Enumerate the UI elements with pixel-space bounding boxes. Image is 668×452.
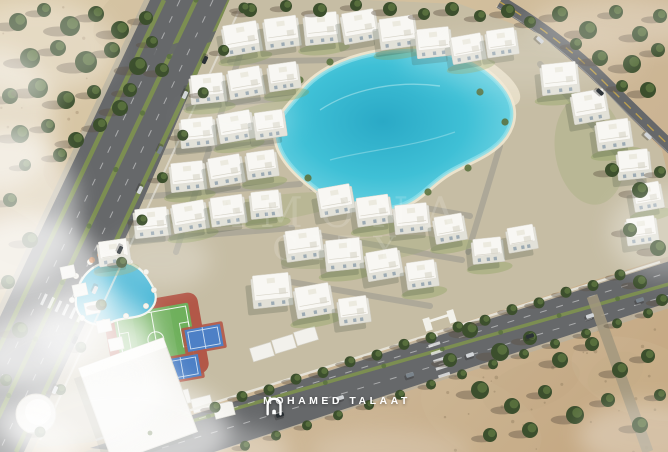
rock-speckle (586, 352, 588, 354)
median-bush (323, 380, 328, 385)
rooftop-unit (429, 32, 437, 38)
median-bush (86, 223, 91, 228)
facade-window (187, 185, 191, 189)
tree-highlight (242, 4, 248, 10)
facade-window (335, 209, 339, 213)
tree-highlight (150, 37, 157, 44)
tree-highlight (140, 216, 146, 222)
tree-highlight (646, 84, 655, 93)
rock-speckle (536, 448, 538, 450)
beach-tree (464, 164, 471, 171)
tree-highlight (135, 59, 145, 69)
facade-window (579, 118, 583, 122)
aerial-compound-render: AMONA CITY MOHAMED TALAAT (0, 0, 668, 452)
facade-window (270, 44, 274, 48)
facade-window (310, 39, 314, 43)
facade-window (227, 219, 231, 223)
tree-highlight (616, 319, 622, 325)
building-roof (406, 259, 436, 282)
tree-highlight (537, 299, 543, 305)
building-roof (338, 295, 368, 318)
building-roof (356, 194, 391, 219)
tree-highlight (98, 119, 106, 127)
facade-window (411, 227, 415, 231)
facade-window (225, 179, 229, 183)
rooftop-unit (267, 278, 275, 284)
facade-window (265, 212, 269, 216)
facade-window (362, 221, 366, 225)
median-bush (440, 347, 445, 352)
tree-highlight (638, 276, 646, 284)
tree-highlight (456, 323, 462, 329)
facade-window (440, 238, 444, 242)
facade-window (353, 263, 357, 267)
building-roof (246, 149, 276, 172)
rooftop-unit (317, 17, 325, 23)
tree-highlight (492, 360, 498, 366)
facade-window (256, 213, 260, 217)
tree-highlight (368, 401, 374, 407)
facade-window (633, 173, 637, 177)
facade-window (598, 115, 602, 119)
rock-speckle (491, 380, 493, 382)
facade-window (613, 143, 617, 147)
facade-window (178, 227, 182, 231)
median-bush (140, 110, 145, 115)
facade-window (641, 172, 645, 176)
facade-window (372, 275, 376, 279)
facade-window (478, 258, 482, 262)
tree-highlight (646, 350, 654, 358)
facade-window (449, 236, 453, 240)
tree-highlight (610, 164, 618, 172)
tree-highlight (92, 86, 100, 94)
facade-window (622, 142, 626, 146)
tree-highlight (506, 5, 514, 13)
facade-window (569, 87, 573, 91)
facade-window (254, 90, 258, 94)
tree-highlight (181, 131, 187, 137)
median-bush (381, 363, 386, 368)
facade-window (176, 186, 180, 190)
facade-window (412, 284, 416, 288)
tree-highlight (429, 333, 435, 339)
tree-highlight (658, 390, 665, 397)
rock-speckle (444, 416, 446, 418)
beach-tree (501, 118, 508, 125)
median-bush (615, 296, 620, 301)
rock-speckle (604, 380, 606, 382)
building-roof (596, 118, 631, 143)
tree-highlight (74, 134, 83, 143)
facade-window (456, 235, 460, 239)
facade-window (487, 257, 491, 261)
fog-cloud (36, 286, 156, 374)
rock-speckle (544, 402, 546, 404)
facade-window (258, 303, 262, 307)
facade-window (282, 300, 286, 304)
building-roof (252, 272, 290, 301)
rooftop-unit (339, 243, 347, 249)
tree-highlight (590, 338, 598, 346)
tree-highlight (399, 391, 405, 397)
tree-highlight (554, 340, 560, 346)
facade-window (198, 224, 202, 228)
tree-highlight (448, 354, 456, 362)
rock-speckle (67, 118, 70, 121)
tree-highlight (117, 23, 127, 33)
fog-cloud (110, 230, 210, 290)
facade-window (324, 211, 328, 215)
facade-window (281, 42, 285, 46)
facade-window (360, 317, 364, 321)
facade-window (302, 312, 306, 316)
facade-window (373, 219, 377, 223)
rock-speckle (76, 111, 79, 114)
facade-window (216, 221, 220, 225)
tree-highlight (606, 394, 614, 402)
facade-window (245, 91, 249, 95)
facade-window (230, 50, 234, 54)
tree-highlight (321, 368, 327, 374)
tree-highlight (294, 375, 300, 381)
tree-highlight (402, 340, 408, 346)
rock-speckle (511, 420, 514, 423)
facade-window (189, 225, 193, 229)
rooftop-unit (203, 78, 211, 84)
rooftop-unit (147, 212, 155, 218)
median-bush (167, 54, 172, 59)
facade-window (590, 116, 594, 120)
tree-highlight (510, 400, 519, 409)
facade-window (197, 141, 201, 145)
tree-highlight (94, 8, 103, 17)
beach-tree (304, 174, 311, 181)
facade-window (236, 218, 240, 222)
fog-cloud (180, 96, 300, 144)
facade-window (321, 38, 325, 42)
tree-highlight (477, 383, 487, 393)
facade-window (313, 253, 317, 257)
tree-highlight (160, 64, 168, 72)
tree-highlight (118, 102, 127, 111)
facade-window (291, 256, 295, 260)
rock-speckle (531, 409, 533, 411)
facade-window (251, 46, 255, 50)
facade-window (268, 171, 272, 175)
scene-canvas (0, 0, 668, 452)
facade-window (383, 273, 387, 277)
tree-highlight (618, 270, 624, 276)
tree-highlight (461, 370, 467, 376)
facade-window (397, 42, 401, 46)
tree-highlight (572, 408, 582, 418)
facade-window (274, 86, 278, 90)
tree-highlight (284, 1, 291, 8)
tree-highlight (388, 3, 396, 11)
tree-highlight (647, 309, 653, 315)
tree-highlight (528, 424, 537, 433)
tree-highlight (128, 84, 136, 92)
facade-window (513, 247, 517, 251)
facade-window (234, 178, 238, 182)
facade-window (623, 174, 627, 178)
tree-highlight (337, 411, 343, 417)
facade-window (271, 301, 275, 305)
facade-window (527, 244, 531, 248)
facade-window (344, 320, 348, 324)
fog-cloud (578, 402, 668, 452)
rooftop-unit (407, 208, 415, 214)
facade-window (360, 36, 364, 40)
facade-window (242, 48, 246, 52)
tree-highlight (348, 357, 354, 363)
tree-highlight (564, 288, 570, 294)
rooftop-unit (261, 195, 269, 201)
tree-highlight (430, 381, 436, 387)
facade-window (214, 181, 218, 185)
facade-window (602, 145, 606, 149)
rock-speckle (494, 391, 496, 393)
tree-highlight (450, 3, 458, 11)
rock-speckle (641, 345, 644, 348)
facade-window (559, 88, 563, 92)
tree-highlight (585, 330, 591, 336)
facade-window (206, 140, 210, 144)
facade-window (400, 228, 404, 232)
tree-highlight (483, 316, 489, 322)
facade-window (323, 308, 327, 312)
facade-window (290, 83, 294, 87)
rooftop-unit (183, 166, 191, 172)
facade-window (368, 35, 372, 39)
tree-highlight (523, 350, 529, 356)
tree-highlight (658, 167, 665, 174)
rock-speckle (482, 376, 484, 378)
tree-highlight (318, 4, 326, 12)
tree-highlight (618, 364, 627, 373)
facade-window (382, 218, 386, 222)
tree-highlight (620, 81, 627, 88)
facade-window (196, 98, 200, 102)
facade-window (252, 174, 256, 178)
facade-window (290, 41, 294, 45)
tree-highlight (510, 305, 516, 311)
facade-window (196, 184, 200, 188)
tree-highlight (144, 12, 152, 20)
tree-highlight (497, 345, 507, 355)
median-bush (498, 330, 503, 335)
facade-window (186, 142, 190, 146)
building-roof (325, 237, 361, 263)
facade-window (392, 272, 396, 276)
tree-highlight (267, 385, 273, 391)
facade-window (330, 37, 334, 41)
tree-highlight (591, 281, 597, 287)
fog-cloud (400, 30, 640, 90)
tree-highlight (375, 351, 381, 357)
facade-window (272, 212, 276, 216)
facade-window (420, 226, 424, 230)
beach-tree (476, 88, 483, 95)
facade-window (344, 208, 348, 212)
facade-window (547, 90, 551, 94)
tree-highlight (422, 9, 429, 16)
rock-speckle (560, 383, 563, 386)
tree-highlight (660, 295, 667, 302)
building-roof (268, 61, 298, 84)
tree-highlight (543, 386, 551, 394)
facade-window (314, 310, 318, 314)
facade-window (428, 281, 432, 285)
facade-window (283, 84, 287, 88)
rock-speckle (446, 391, 449, 394)
facade-window (261, 172, 265, 176)
facade-window (331, 266, 335, 270)
rooftop-unit (483, 242, 491, 248)
facade-window (303, 254, 307, 258)
tree-highlight (306, 421, 312, 427)
rock-speckle (654, 328, 657, 331)
tree-highlight (222, 46, 228, 52)
rooftop-unit (629, 154, 637, 160)
facade-window (421, 282, 425, 286)
tree-highlight (354, 0, 361, 7)
building-roof (210, 194, 245, 219)
tree-highlight (63, 93, 73, 103)
beach-tree (424, 188, 431, 195)
median-bush (264, 397, 269, 402)
facade-window (353, 318, 357, 322)
rock-speckle (495, 376, 499, 380)
tree-highlight (161, 173, 167, 179)
facade-window (521, 245, 525, 249)
facade-window (343, 264, 347, 268)
rock-speckle (583, 352, 585, 354)
tree-highlight (488, 429, 496, 437)
median-bush (113, 167, 118, 172)
facade-window (494, 257, 498, 261)
rock-speckle (648, 375, 651, 378)
tree-highlight (478, 11, 485, 18)
facade-window (385, 44, 389, 48)
rock-speckle (468, 413, 470, 415)
median-bush (557, 313, 562, 318)
beach-tree (326, 58, 333, 65)
tree-highlight (202, 88, 208, 94)
tree-highlight (558, 354, 567, 363)
tree-highlight (240, 392, 246, 398)
facade-window (349, 38, 353, 42)
